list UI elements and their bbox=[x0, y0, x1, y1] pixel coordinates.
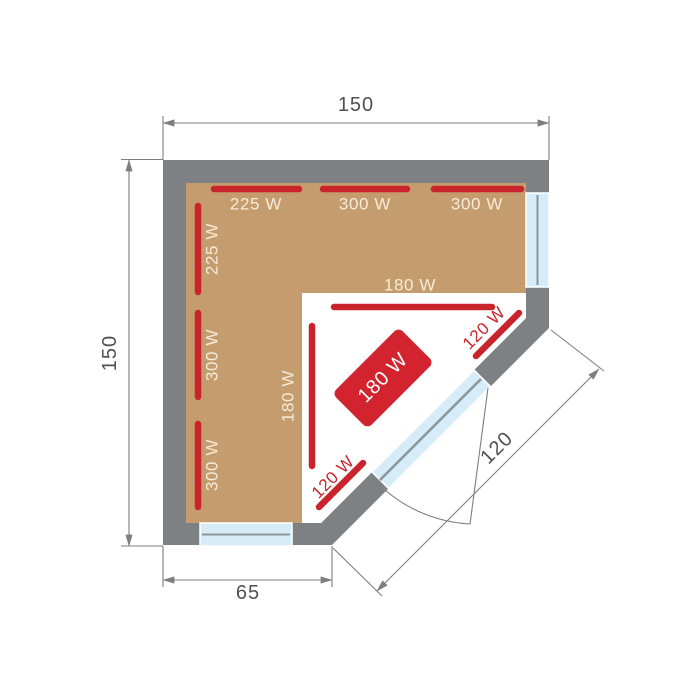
dimension-bottom: 65 bbox=[163, 546, 332, 604]
dimension-label: 150 bbox=[99, 335, 121, 371]
window-bottom bbox=[200, 523, 292, 546]
heater-label: 180 W bbox=[384, 276, 436, 295]
sauna-floor-plan: 225 W 300 W 300 W 225 W 300 W 300 W 180 … bbox=[0, 0, 700, 700]
dimension-top: 150 bbox=[163, 94, 549, 160]
heater-label: 180 W bbox=[279, 370, 298, 422]
dimension-label: 65 bbox=[236, 582, 260, 604]
heater-label: 300 W bbox=[203, 329, 222, 381]
dimension-label: 150 bbox=[338, 94, 374, 116]
heater-label: 300 W bbox=[339, 195, 391, 214]
extension-line bbox=[333, 548, 382, 596]
window-right bbox=[526, 193, 549, 287]
heater-label: 300 W bbox=[203, 439, 222, 491]
heater-label: 225 W bbox=[230, 195, 282, 214]
extension-line bbox=[551, 330, 604, 371]
floor-plan-canvas: 225 W 300 W 300 W 225 W 300 W 300 W 180 … bbox=[0, 0, 700, 700]
dimension-label: 120 bbox=[476, 427, 517, 468]
heater-label: 225 W bbox=[203, 223, 222, 275]
heaters-left-wall: 225 W 300 W 300 W bbox=[198, 206, 222, 507]
dimension-left: 150 bbox=[99, 160, 163, 547]
heater-label: 300 W bbox=[451, 195, 503, 214]
door-swing-arc bbox=[385, 490, 470, 524]
